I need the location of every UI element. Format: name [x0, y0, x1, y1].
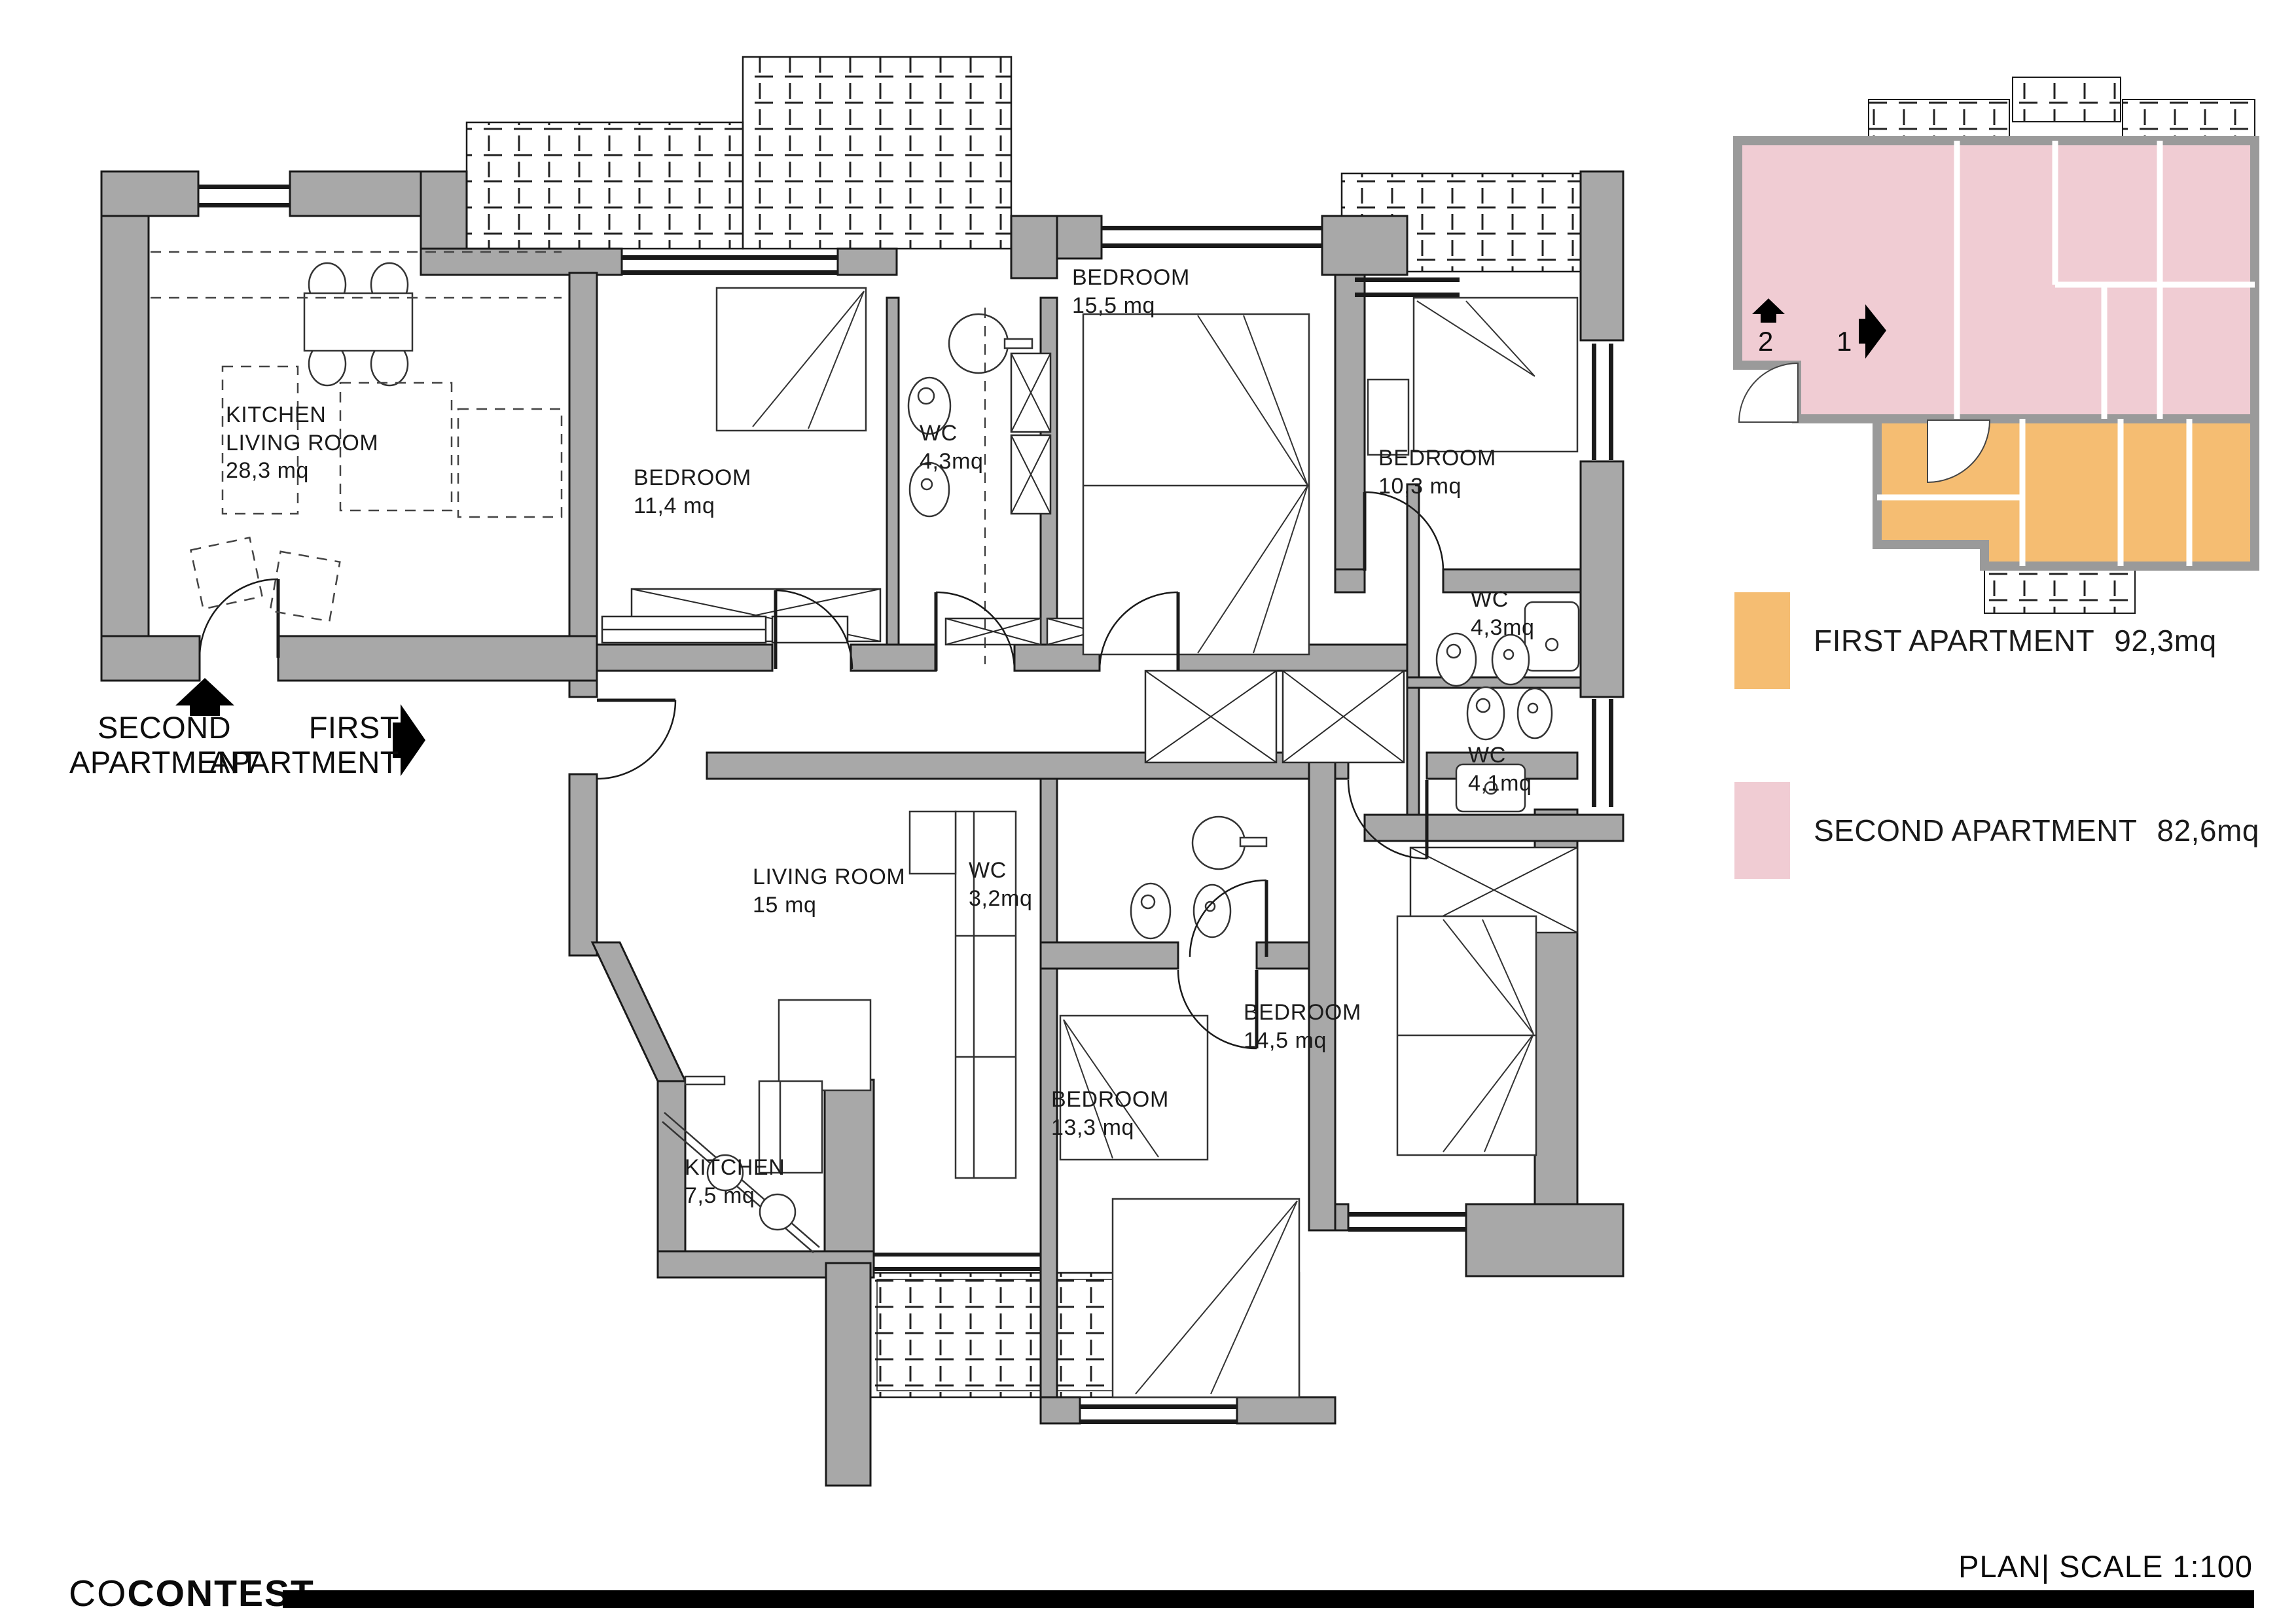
keyplan-door-2: [1739, 363, 1798, 422]
room-label-wc-center: WC 4,3mq: [920, 391, 984, 503]
room-label-bedroom-13: BEDROOM 13,3 mq: [1051, 1058, 1169, 1169]
room-label-wc-small: WC 3,2mq: [969, 829, 1033, 940]
room-area: 11,4 mq: [634, 492, 751, 520]
room-area: 13,3 mq: [1051, 1114, 1169, 1142]
room-area: 4,3mq: [1471, 614, 1535, 642]
cocontest-logo: COCONTEST: [69, 1572, 315, 1615]
room-name: BEDROOM: [1051, 1087, 1169, 1112]
legend-second-apartment: SECOND APARTMENT82,6mq: [1734, 782, 2259, 879]
room-name: WC: [1468, 743, 1506, 768]
legend-text-second: SECOND APARTMENT82,6mq: [1814, 813, 2259, 848]
legend-area: 92,3mq: [2114, 624, 2216, 658]
room-label-wc-right-mid: WC 4,1mq: [1468, 713, 1532, 825]
room-label-kitchen: KITCHEN 7,5 mq: [685, 1126, 785, 1238]
room-name: BEDROOM: [634, 465, 751, 490]
legend-label: SECOND APARTMENT: [1814, 813, 2137, 847]
floor-plan-page: KITCHEN LIVING ROOM 28,3 mq BEDROOM 11,4…: [0, 0, 2296, 1623]
key-plan: [1738, 77, 2255, 613]
keyplan-number-2: 2: [1758, 326, 1773, 357]
room-area: 15,5 mq: [1072, 292, 1190, 320]
legend-first-apartment: FIRST APARTMENT92,3mq: [1734, 592, 2217, 689]
room-label-bedroom-15: BEDROOM 15,5 mq: [1072, 236, 1190, 348]
room-area: 14,5 mq: [1244, 1027, 1361, 1055]
room-label-living-room: LIVING ROOM 15 mq: [753, 835, 905, 947]
legend-swatch-second: [1734, 782, 1790, 879]
legend-area: 82,6mq: [2157, 813, 2259, 847]
legend-text-first: FIRST APARTMENT92,3mq: [1814, 623, 2217, 658]
room-area: 10,3 mq: [1378, 473, 1496, 501]
room-name: BEDROOM: [1378, 446, 1496, 471]
first-apartment-label: FIRST APARTMENT: [183, 711, 399, 779]
room-area: 15 mq: [753, 891, 905, 919]
room-label-bedroom-10: BEDROOM 10,3 mq: [1378, 416, 1496, 528]
room-name: WC: [969, 858, 1007, 883]
room-area: 4,3mq: [920, 448, 984, 476]
legend-swatch-first: [1734, 592, 1790, 689]
room-name: BEDROOM: [1072, 265, 1190, 290]
brand-regular: CO: [69, 1573, 128, 1614]
room-name: KITCHEN LIVING ROOM: [226, 402, 378, 455]
room-name: WC: [1471, 587, 1509, 612]
room-area: 3,2mq: [969, 885, 1033, 913]
room-label-wc-right-top: WC 4,3mq: [1471, 558, 1535, 669]
keyplan-number-1: 1: [1837, 326, 1852, 357]
room-area: 4,1mq: [1468, 770, 1532, 798]
room-name: WC: [920, 421, 958, 446]
room-label-bedroom-11: BEDROOM 11,4 mq: [634, 436, 751, 548]
room-area: 7,5 mq: [685, 1182, 785, 1210]
room-name: KITCHEN: [685, 1155, 785, 1180]
footer-divider-bar: [283, 1590, 2254, 1608]
windows: [198, 185, 1613, 1424]
room-name: LIVING ROOM: [753, 865, 905, 889]
room-label-bedroom-14: BEDROOM 14,5 mq: [1244, 971, 1361, 1082]
legend-label: FIRST APARTMENT: [1814, 624, 2094, 658]
room-name: BEDROOM: [1244, 1000, 1361, 1025]
room-area: 28,3 mq: [226, 457, 378, 485]
room-label-kitchen-living: KITCHEN LIVING ROOM 28,3 mq: [226, 373, 378, 513]
plan-scale-label: PLAN| SCALE 1:100: [1892, 1548, 2253, 1584]
keyplan-second-apartment-area: [1738, 141, 2255, 419]
